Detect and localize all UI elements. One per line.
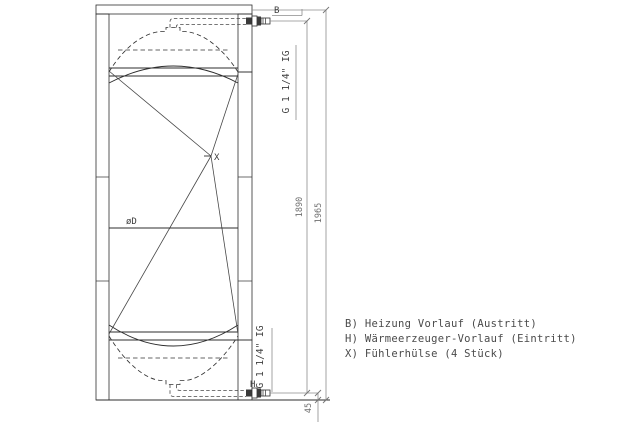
vessel-diagonals [109,71,238,334]
dimension-1965-value: 1965 [314,203,324,223]
fitting-b-collar [252,16,257,26]
dimension-45-value: 45 [304,403,314,413]
thread-label-bottom: G 1 1/4" IG [255,325,266,388]
insulation-top-band [96,5,252,14]
pipe-top-outer [170,19,246,28]
fitting-b-wall-sleeve [246,18,252,25]
fitting-b-nut [257,17,261,26]
insulation-joint-marks [96,177,252,281]
diameter-label: øD [126,217,137,227]
legend-line-x: X) Fühlerhülse (4 Stück) [345,348,504,360]
fitting-h-wall-sleeve [246,390,252,397]
vessel-bottom-dome-hidden [109,336,238,385]
buffer-tank-section-drawing: B H X øD G 1 1/4" IG G 1 1/4" IG 1890 19… [0,0,640,427]
pipe-bottom-inner [177,385,247,391]
fitting-b [246,16,270,26]
vessel-bottom-head-arc [109,325,238,346]
dimension-1890-value: 1890 [295,197,305,217]
legend: B) Heizung Vorlauf (Austritt) H) Wärmeer… [345,318,577,360]
technical-drawing-page: B H X øD G 1 1/4" IG G 1 1/4" IG 1890 19… [0,0,640,427]
vessel-top-head-arc [109,66,238,83]
insulation-left-wall [96,14,109,400]
fitting-h-nut [257,389,261,398]
pipe-top-inner [177,25,247,28]
thread-label-top: G 1 1/4" IG [281,50,292,113]
port-b-label: B [274,6,279,16]
insulation-right-wall [238,72,252,340]
legend-line-b: B) Heizung Vorlauf (Austritt) [345,318,537,330]
sensor-x-label: X [214,153,220,163]
vessel [109,28,238,385]
legend-line-h: H) Wärmeerzeuger-Vorlauf (Eintritt) [345,333,577,345]
